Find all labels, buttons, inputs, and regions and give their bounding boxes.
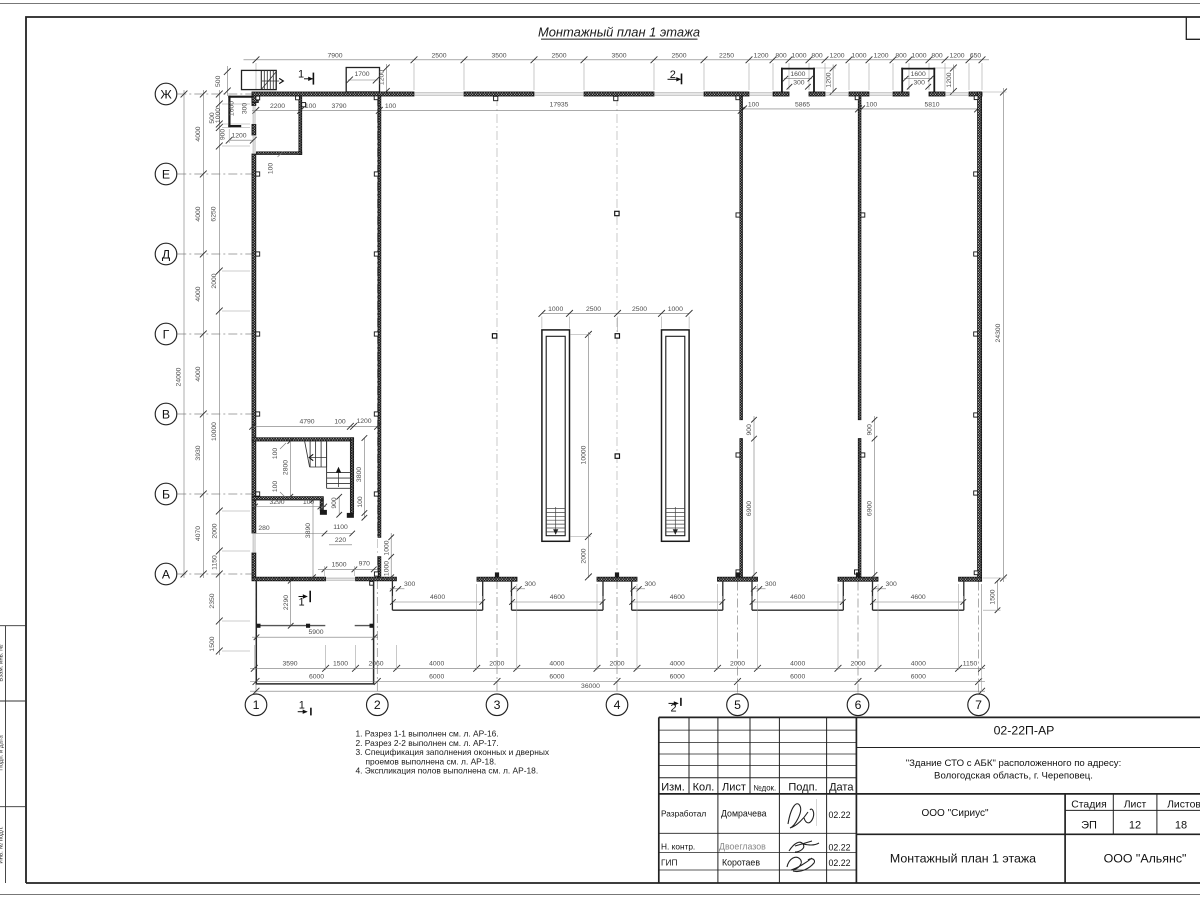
svg-text:970: 970 — [359, 560, 371, 567]
svg-text:4000: 4000 — [429, 660, 444, 667]
svg-text:Двоеглазов: Двоеглазов — [719, 842, 766, 852]
svg-text:1200: 1200 — [946, 72, 953, 87]
svg-text:1600: 1600 — [790, 71, 805, 78]
svg-text:300: 300 — [765, 581, 777, 588]
svg-text:6250: 6250 — [210, 206, 217, 221]
svg-text:100: 100 — [272, 481, 279, 493]
svg-text:10000: 10000 — [580, 445, 587, 464]
svg-text:100: 100 — [357, 496, 364, 508]
svg-text:2500: 2500 — [671, 52, 686, 59]
svg-text:№док.: №док. — [753, 784, 776, 793]
svg-text:100: 100 — [305, 103, 317, 110]
svg-text:18: 18 — [1175, 820, 1187, 832]
svg-text:Ж: Ж — [160, 87, 172, 101]
svg-text:1000: 1000 — [791, 52, 806, 59]
svg-text:В: В — [162, 407, 170, 421]
svg-text:2000: 2000 — [730, 660, 745, 667]
svg-text:2500: 2500 — [431, 52, 446, 59]
svg-text:Подп.: Подп. — [788, 781, 817, 793]
svg-text:300: 300 — [914, 80, 926, 87]
svg-text:6000: 6000 — [309, 674, 324, 681]
svg-text:1000: 1000 — [851, 52, 866, 59]
svg-text:2500: 2500 — [632, 306, 647, 313]
svg-text:Монтажный план 1 этажа: Монтажный план 1 этажа — [890, 851, 1036, 865]
svg-text:1000: 1000 — [911, 52, 926, 59]
svg-text:6900: 6900 — [866, 501, 873, 516]
svg-text:ГИП: ГИП — [661, 858, 677, 868]
svg-text:"Здание СТО с АБК" расположенн: "Здание СТО с АБК" расположенного по адр… — [906, 758, 1122, 769]
svg-text:1200: 1200 — [356, 418, 371, 425]
svg-text:4790: 4790 — [299, 419, 314, 426]
svg-text:6000: 6000 — [429, 674, 444, 681]
svg-text:Б: Б — [162, 487, 170, 501]
svg-text:1500: 1500 — [333, 660, 348, 667]
svg-text:4000: 4000 — [195, 366, 202, 381]
svg-text:1: 1 — [253, 698, 260, 712]
svg-text:1200: 1200 — [829, 52, 844, 59]
svg-text:500: 500 — [215, 75, 222, 87]
svg-text:4000: 4000 — [195, 126, 202, 141]
svg-text:800: 800 — [811, 52, 823, 59]
svg-text:1000: 1000 — [548, 306, 563, 313]
svg-text:3290: 3290 — [269, 499, 284, 506]
svg-text:ООО "Сириус": ООО "Сириус" — [921, 808, 989, 819]
svg-text:1000: 1000 — [668, 306, 683, 313]
svg-text:Д: Д — [162, 247, 171, 261]
svg-text:2000: 2000 — [850, 660, 865, 667]
svg-text:4600: 4600 — [670, 594, 685, 601]
svg-text:3590: 3590 — [282, 660, 297, 667]
svg-text:4600: 4600 — [430, 594, 445, 601]
svg-text:2000: 2000 — [212, 523, 219, 538]
svg-text:2500: 2500 — [586, 306, 601, 313]
svg-text:3930: 3930 — [195, 445, 202, 460]
svg-text:4000: 4000 — [195, 206, 202, 221]
svg-text:100: 100 — [334, 419, 346, 426]
svg-text:1: 1 — [299, 700, 305, 712]
svg-text:4070: 4070 — [195, 526, 202, 541]
svg-text:4000: 4000 — [670, 660, 685, 667]
svg-text:1500: 1500 — [209, 636, 216, 651]
svg-text:Лист: Лист — [722, 781, 746, 793]
svg-text:300: 300 — [525, 581, 537, 588]
svg-text:Инв. № подл.: Инв. № подл. — [0, 826, 5, 864]
svg-text:4000: 4000 — [549, 660, 564, 667]
svg-text:3800: 3800 — [356, 467, 363, 482]
svg-text:6000: 6000 — [549, 674, 564, 681]
svg-text:3890: 3890 — [305, 523, 312, 538]
svg-text:02.22: 02.22 — [829, 810, 851, 820]
svg-text:5865: 5865 — [795, 101, 810, 108]
svg-text:2060: 2060 — [368, 660, 383, 667]
svg-text:300: 300 — [404, 581, 416, 588]
svg-text:1: 1 — [298, 69, 304, 81]
svg-text:2: 2 — [374, 698, 381, 712]
svg-text:1600: 1600 — [228, 101, 235, 116]
svg-text:Стадия: Стадия — [1071, 799, 1106, 810]
svg-text:5: 5 — [734, 698, 741, 712]
svg-text:Е: Е — [162, 167, 170, 181]
svg-text:900: 900 — [220, 129, 227, 141]
svg-text:Лист: Лист — [1124, 799, 1147, 810]
svg-text:6: 6 — [855, 698, 862, 712]
svg-text:2250: 2250 — [719, 52, 734, 59]
svg-text:24300: 24300 — [995, 323, 1002, 342]
svg-text:4600: 4600 — [790, 594, 805, 601]
svg-text:5900: 5900 — [308, 629, 323, 636]
svg-text:1150: 1150 — [963, 660, 978, 667]
svg-text:900: 900 — [746, 424, 753, 436]
svg-text:3500: 3500 — [491, 52, 506, 59]
svg-text:900: 900 — [866, 424, 873, 436]
svg-text:2000: 2000 — [580, 548, 587, 563]
svg-text:Разработал: Разработал — [661, 808, 706, 818]
svg-text:4600: 4600 — [550, 594, 565, 601]
svg-text:Кол.: Кол. — [693, 781, 715, 793]
svg-text:Н. контр.: Н. контр. — [661, 842, 695, 852]
svg-text:300: 300 — [793, 80, 805, 87]
svg-text:650: 650 — [970, 52, 982, 59]
svg-text:6000: 6000 — [911, 674, 926, 681]
svg-text:300: 300 — [886, 581, 898, 588]
svg-text:4000: 4000 — [790, 660, 805, 667]
svg-text:4: 4 — [614, 698, 621, 712]
svg-text:02-22П-АР: 02-22П-АР — [994, 723, 1055, 737]
svg-text:ООО "Альянс": ООО "Альянс" — [1104, 851, 1187, 865]
svg-text:Листов: Листов — [1167, 799, 1200, 810]
svg-text:2350: 2350 — [209, 593, 216, 608]
svg-text:2000: 2000 — [211, 273, 218, 288]
svg-text:1100: 1100 — [333, 524, 348, 531]
svg-text:Коротаев: Коротаев — [722, 858, 760, 868]
svg-text:1500: 1500 — [331, 562, 346, 569]
svg-text:2800: 2800 — [283, 460, 290, 475]
svg-text:280: 280 — [258, 525, 270, 532]
svg-text:100: 100 — [748, 101, 760, 108]
svg-text:1200: 1200 — [949, 52, 964, 59]
svg-text:7: 7 — [975, 698, 982, 712]
svg-text:2000: 2000 — [489, 660, 504, 667]
svg-text:2290: 2290 — [283, 595, 290, 610]
svg-text:12: 12 — [1129, 820, 1141, 832]
svg-text:Изм.: Изм. — [661, 781, 685, 793]
svg-text:Домрачева: Домрачева — [721, 808, 767, 818]
svg-text:1150: 1150 — [212, 555, 219, 570]
svg-text:17935: 17935 — [550, 102, 569, 109]
svg-text:24000: 24000 — [176, 367, 183, 386]
svg-text:36000: 36000 — [581, 683, 600, 690]
svg-text:100: 100 — [268, 163, 275, 175]
svg-text:1000: 1000 — [215, 108, 222, 123]
svg-text:Взам. инв. №: Взам. инв. № — [0, 644, 5, 681]
svg-text:1200: 1200 — [753, 52, 768, 59]
svg-text:4000: 4000 — [911, 660, 926, 667]
svg-text:1000: 1000 — [383, 540, 390, 555]
svg-text:2200: 2200 — [270, 103, 285, 110]
svg-text:02.22: 02.22 — [829, 858, 851, 868]
svg-text:100: 100 — [272, 448, 279, 460]
svg-text:300: 300 — [241, 103, 248, 115]
svg-text:10000: 10000 — [211, 422, 218, 441]
svg-text:1200: 1200 — [379, 70, 386, 85]
svg-text:4000: 4000 — [195, 286, 202, 301]
svg-text:100: 100 — [866, 101, 878, 108]
svg-text:Вологодская область, г. Черепо: Вологодская область, г. Череповец. — [934, 770, 1093, 781]
svg-text:6000: 6000 — [670, 674, 685, 681]
svg-text:Дата: Дата — [829, 781, 854, 793]
svg-text:1200: 1200 — [231, 133, 246, 140]
svg-text:3: 3 — [494, 698, 501, 712]
svg-text:2000: 2000 — [609, 660, 624, 667]
svg-text:3500: 3500 — [611, 52, 626, 59]
svg-text:220: 220 — [335, 537, 347, 544]
svg-text:1600: 1600 — [911, 71, 926, 78]
svg-text:1000: 1000 — [383, 561, 390, 576]
svg-text:100: 100 — [385, 103, 397, 110]
svg-text:1200: 1200 — [826, 72, 833, 87]
svg-text:ЭП: ЭП — [1081, 820, 1097, 832]
svg-text:300: 300 — [645, 581, 657, 588]
svg-text:7900: 7900 — [327, 52, 342, 59]
svg-text:А: А — [162, 567, 171, 581]
svg-text:1500: 1500 — [990, 589, 997, 604]
svg-text:1200: 1200 — [873, 52, 888, 59]
svg-text:Монтажный план 1 этажа: Монтажный план 1 этажа — [538, 25, 700, 40]
svg-text:4. Экспликация полов выполнена: 4. Экспликация полов выполнена см. л. АР… — [356, 766, 539, 776]
svg-text:1700: 1700 — [354, 71, 369, 78]
svg-text:Г: Г — [163, 327, 170, 341]
svg-text:6000: 6000 — [790, 674, 805, 681]
svg-text:2500: 2500 — [551, 52, 566, 59]
svg-text:3790: 3790 — [331, 103, 346, 110]
svg-text:800: 800 — [931, 52, 943, 59]
svg-text:800: 800 — [775, 52, 787, 59]
svg-text:5810: 5810 — [924, 101, 939, 108]
svg-text:800: 800 — [895, 52, 907, 59]
svg-text:4600: 4600 — [911, 594, 926, 601]
svg-text:02.22: 02.22 — [829, 843, 851, 853]
svg-text:6900: 6900 — [746, 501, 753, 516]
svg-text:Подп. и дата: Подп. и дата — [0, 735, 5, 771]
